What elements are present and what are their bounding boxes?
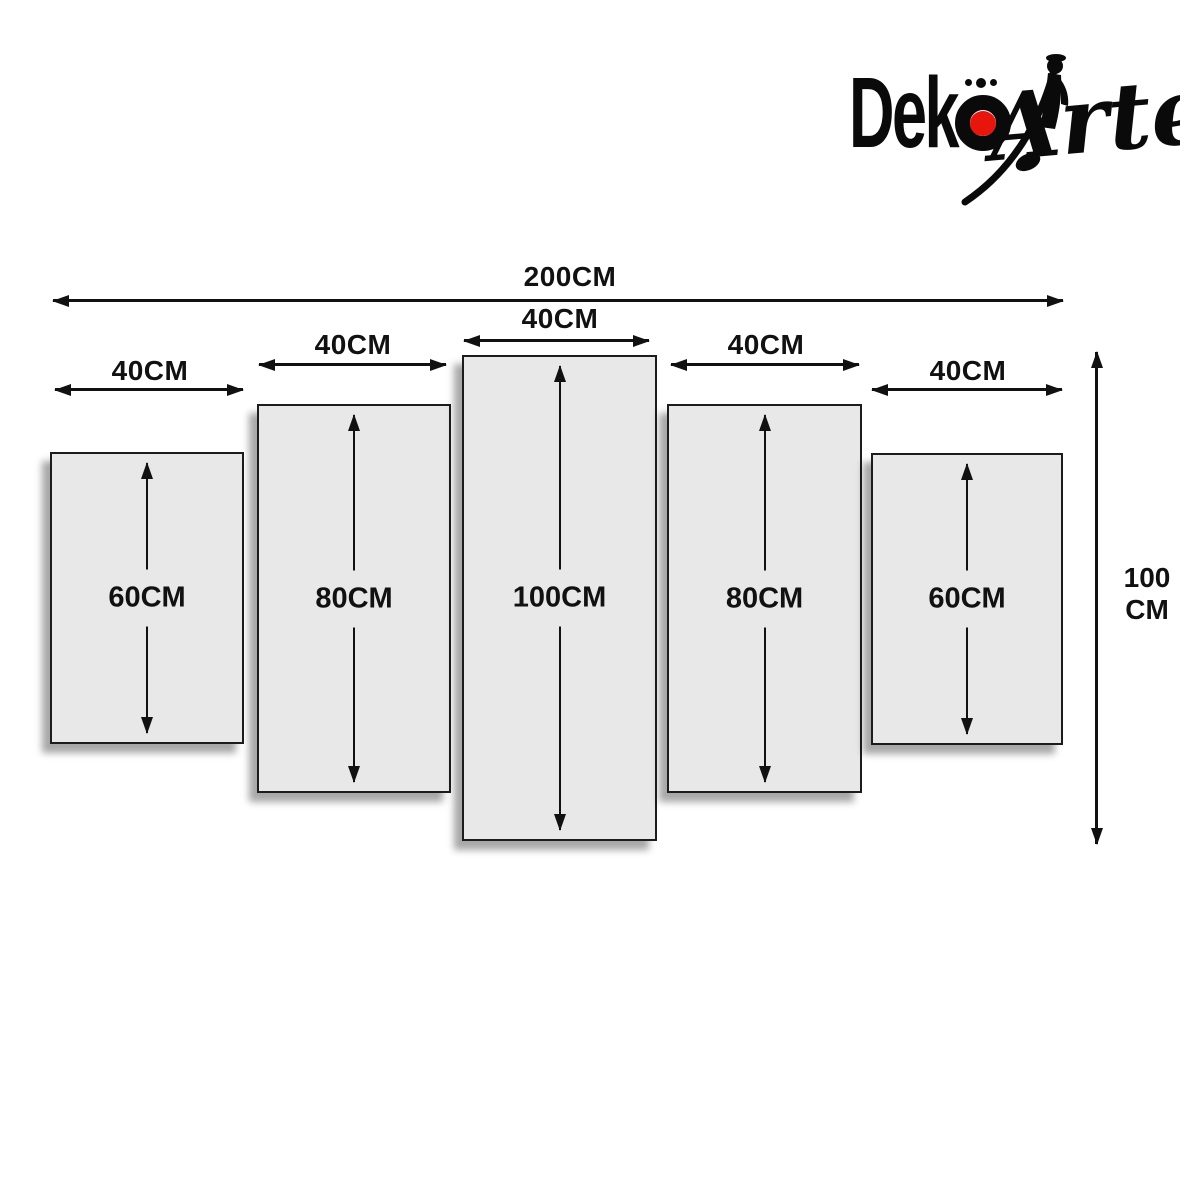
- canvas-panel-2: 80CM: [257, 404, 451, 793]
- brand-logo: Dek Arte: [845, 45, 1180, 230]
- total-height-value: 100: [1108, 562, 1186, 594]
- panel5-width-arrow: [872, 388, 1062, 391]
- canvas-panel-1: 60CM: [50, 452, 244, 744]
- panel1-height-label: 60CM: [104, 570, 189, 627]
- panel2-width-label: 40CM: [315, 329, 392, 361]
- canvas-panel-5: 60CM: [871, 453, 1063, 745]
- panel4-height-label: 80CM: [722, 570, 807, 627]
- panel2-height-label: 80CM: [311, 570, 396, 627]
- panel-size-diagram: Dek Arte 200CM 40CM 40CM 40CM 40CM: [0, 0, 1200, 1200]
- panel2-width-arrow: [259, 363, 446, 366]
- total-height-arrow: [1095, 352, 1098, 844]
- total-height-unit: CM: [1108, 594, 1186, 626]
- total-height-label: 100 CM: [1108, 562, 1186, 626]
- canvas-panel-4: 80CM: [667, 404, 862, 793]
- panel1-width-label: 40CM: [112, 355, 189, 387]
- total-width-arrow: [53, 299, 1063, 302]
- canvas-panel-3: 100CM: [462, 355, 657, 841]
- panel1-width-arrow: [55, 388, 243, 391]
- panel3-height-label: 100CM: [509, 570, 611, 627]
- logo-text-dek: Dek: [849, 63, 957, 163]
- panel4-width-label: 40CM: [728, 329, 805, 361]
- total-width-label: 200CM: [524, 261, 617, 293]
- panel4-width-arrow: [671, 363, 859, 366]
- logo-arte-script: Arte: [957, 50, 1180, 228]
- panel3-width-label: 40CM: [522, 303, 599, 335]
- logo-text-arte: Arte: [976, 56, 1180, 184]
- panel5-height-label: 60CM: [924, 571, 1009, 628]
- panel3-width-arrow: [464, 339, 649, 342]
- panel5-width-label: 40CM: [930, 355, 1007, 387]
